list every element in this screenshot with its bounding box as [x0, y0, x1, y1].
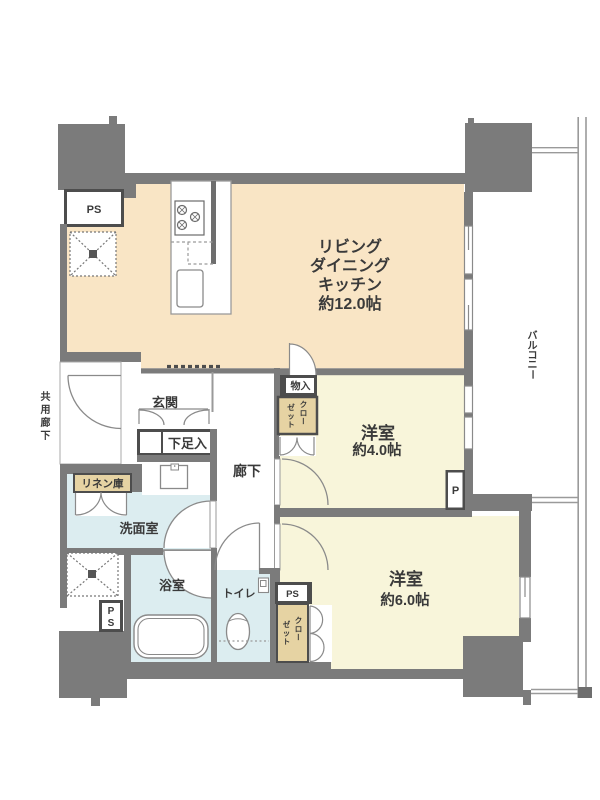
svg-text:廊下: 廊下: [233, 463, 261, 479]
svg-text:リビング: リビング: [318, 237, 382, 256]
svg-text:ゼ: ゼ: [287, 402, 295, 412]
svg-text:ー: ー: [299, 417, 308, 425]
svg-text:洋室: 洋室: [361, 423, 395, 443]
svg-text:物入: 物入: [291, 380, 311, 393]
svg-text:用: 用: [40, 404, 51, 416]
svg-text:浴室: 浴室: [159, 578, 185, 593]
svg-text:ク: ク: [300, 399, 308, 409]
svg-text:P: P: [452, 485, 459, 497]
svg-text:キッチン: キッチン: [318, 277, 382, 294]
svg-text:玄関: 玄関: [152, 395, 178, 410]
svg-text:トイレ: トイレ: [223, 587, 256, 600]
svg-text:廊: 廊: [41, 416, 51, 429]
svg-text:洋室: 洋室: [389, 569, 423, 589]
svg-text:ク: ク: [295, 615, 303, 625]
svg-text:約12.0帖: 約12.0帖: [318, 294, 381, 313]
svg-text:リネン庫: リネン庫: [82, 477, 124, 490]
svg-text:共: 共: [41, 390, 51, 403]
svg-text:PS: PS: [286, 589, 299, 600]
svg-text:PS: PS: [87, 204, 102, 216]
svg-text:ー: ー: [294, 633, 303, 641]
svg-text:ー: ー: [526, 370, 537, 380]
svg-text:ダイニング: ダイニング: [310, 256, 390, 275]
svg-text:ト: ト: [283, 637, 291, 646]
svg-text:ゼ: ゼ: [283, 619, 291, 629]
svg-text:ロ: ロ: [295, 625, 303, 634]
svg-text:ト: ト: [287, 420, 295, 429]
svg-text:ロ: ロ: [300, 409, 308, 418]
svg-text:下: 下: [41, 430, 51, 442]
svg-text:P: P: [108, 606, 115, 617]
svg-text:S: S: [108, 618, 115, 629]
svg-text:洗面室: 洗面室: [119, 521, 158, 536]
svg-text:約4.0帖: 約4.0帖: [352, 441, 402, 459]
svg-text:約6.0帖: 約6.0帖: [380, 591, 430, 609]
svg-text:下足入: 下足入: [168, 436, 207, 451]
